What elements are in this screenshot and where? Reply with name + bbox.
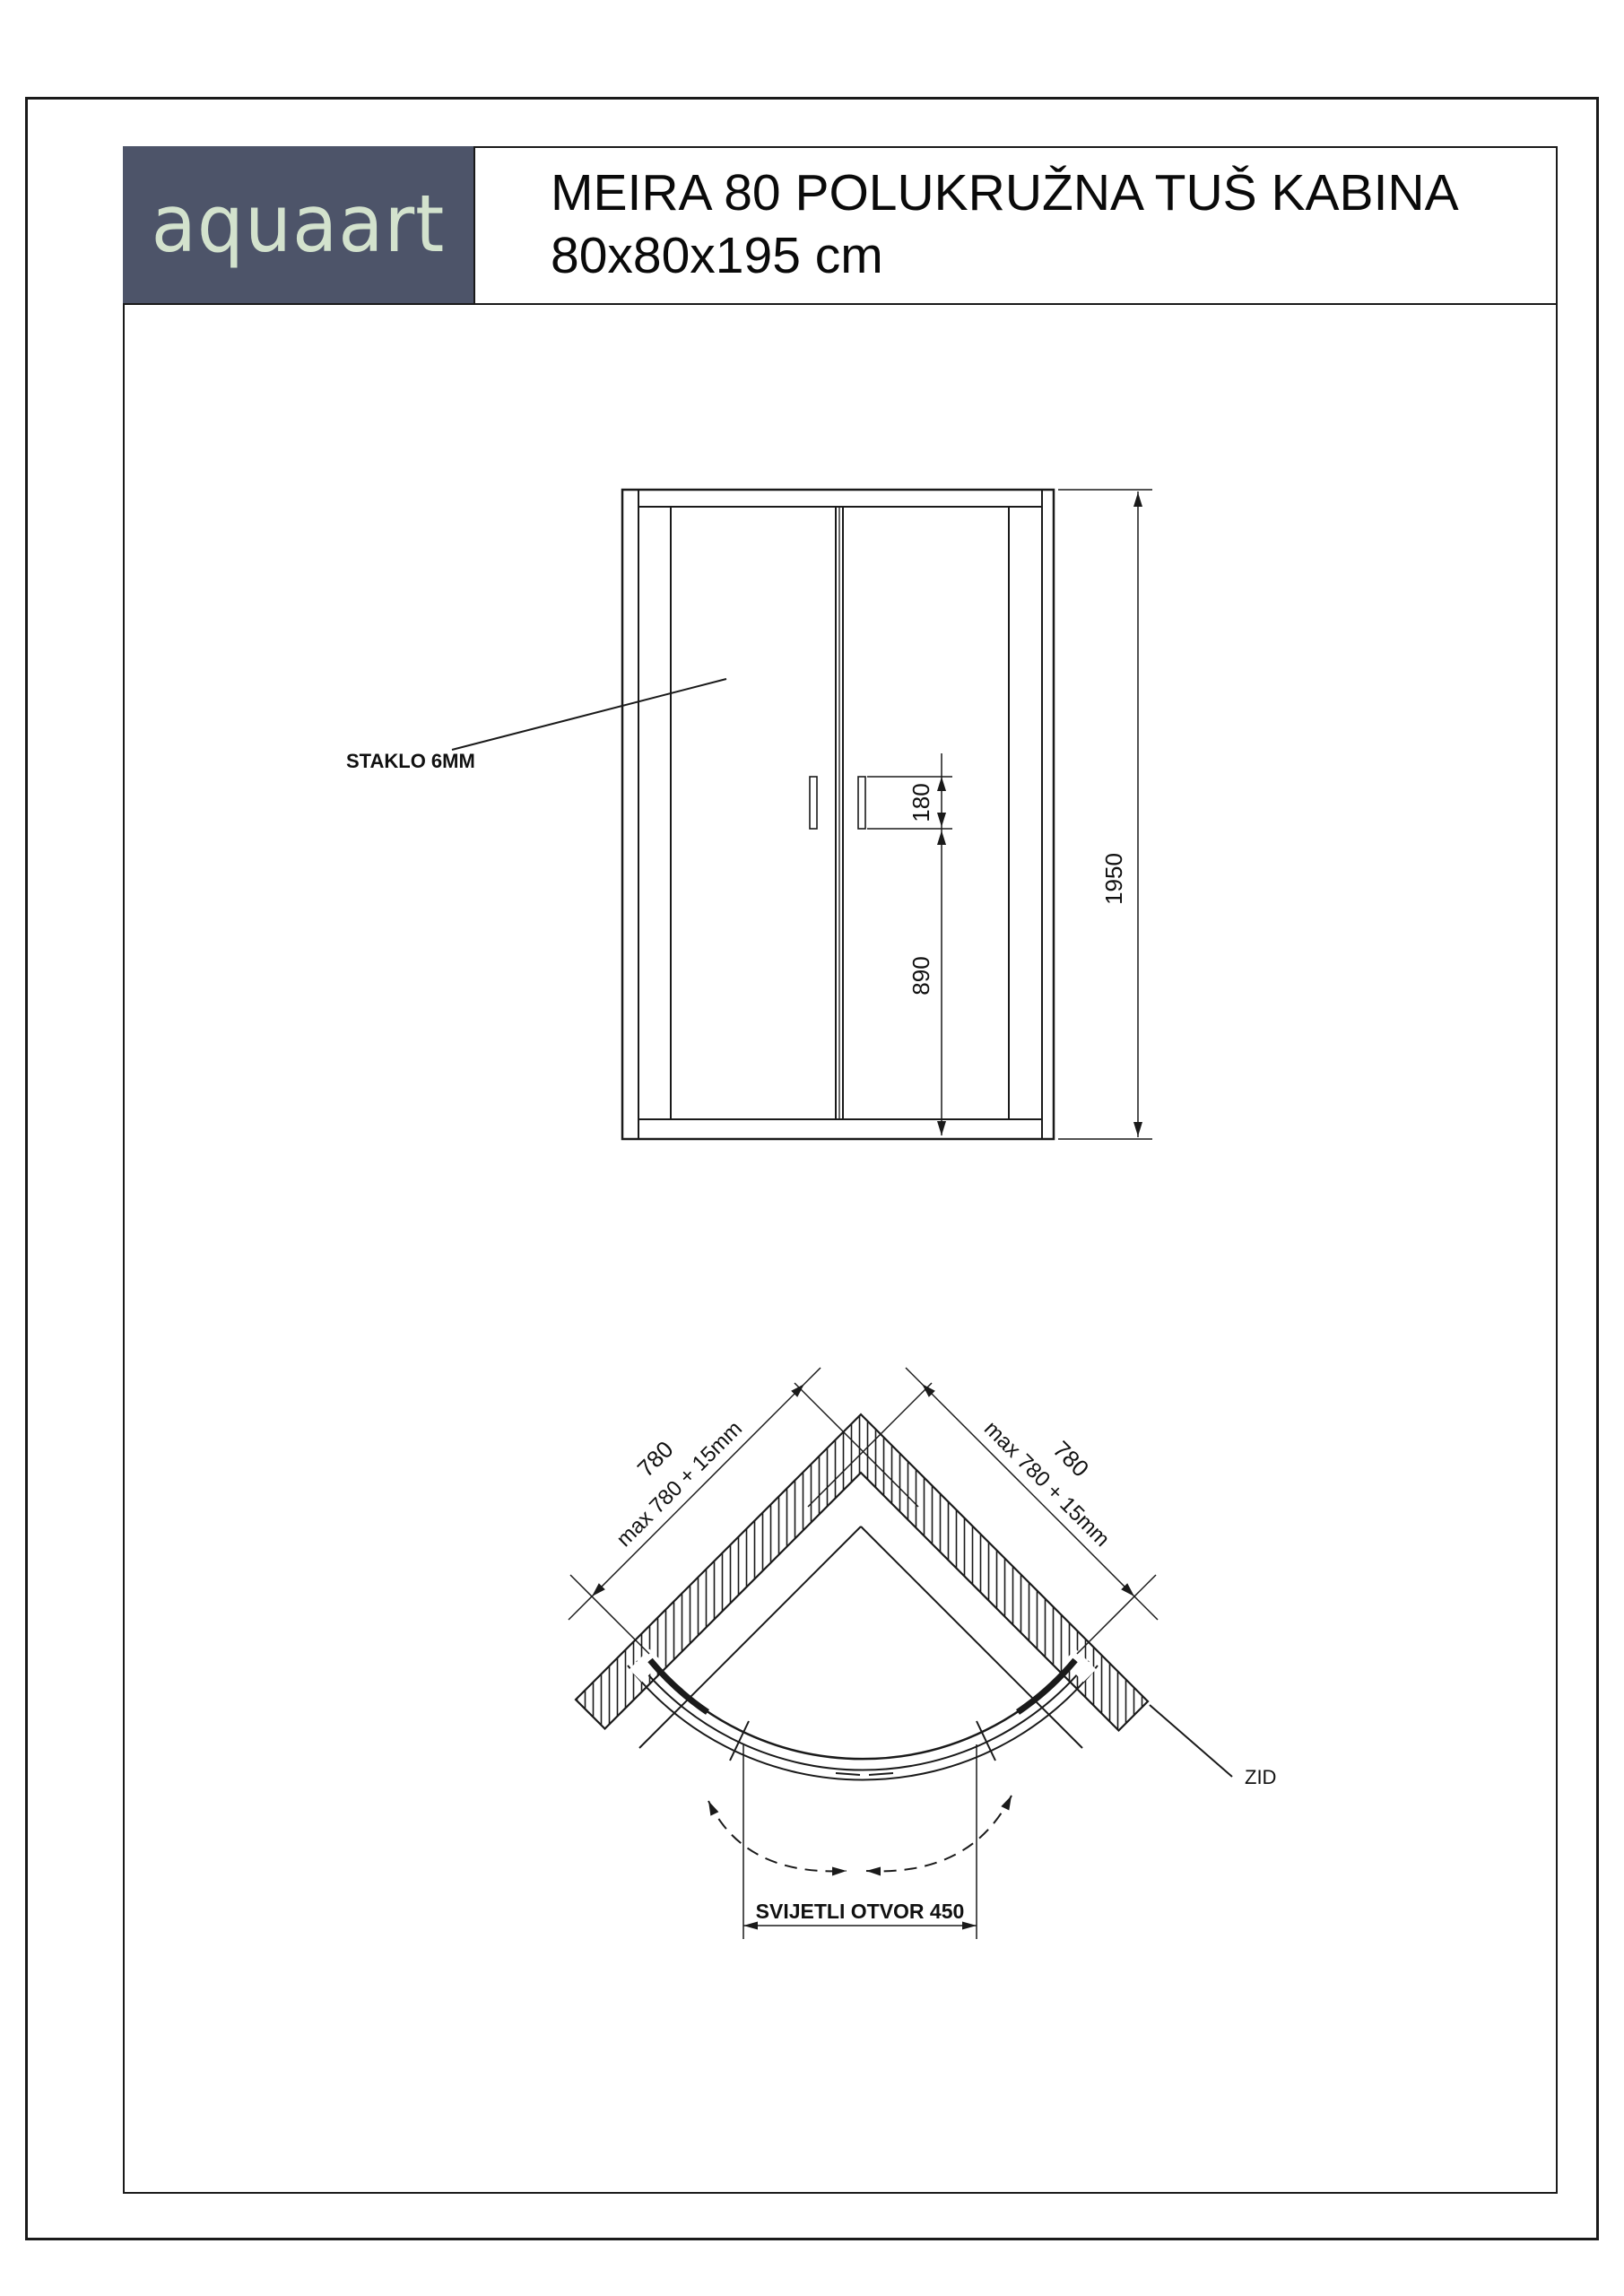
- clear-opening-label: SVIJETLI OTVOR 450: [756, 1900, 965, 1923]
- door-handle-right: [858, 777, 865, 829]
- technical-drawing: 180 890 1950 STAKLO 6MM: [0, 0, 1624, 2296]
- dim-handle-height: 890: [908, 956, 934, 995]
- front-dimensions: [452, 490, 1152, 1139]
- dim-left-wall-max: max 780 + 15mm: [612, 1416, 747, 1552]
- door-handle-left: [810, 777, 817, 829]
- glass-label: STAKLO 6MM: [346, 750, 475, 772]
- dim-right-wall-lines: [808, 1368, 1158, 1654]
- dim-handle-length: 180: [908, 783, 934, 822]
- glass-leader-line: [452, 679, 726, 750]
- dim-total-height: 1950: [1100, 853, 1127, 905]
- dim-right-wall-max: max 780 + 15mm: [979, 1416, 1115, 1552]
- dim-left-wall-lines: [569, 1368, 918, 1654]
- wall-leader-line: [1150, 1705, 1232, 1777]
- door-travel-arrows: [708, 1796, 1012, 1871]
- front-outer-frame: [622, 490, 1054, 1139]
- sliding-door-arc: [650, 1660, 1075, 1759]
- wall-label: ZID: [1245, 1766, 1276, 1788]
- front-elevation: [622, 490, 1054, 1139]
- spec-sheet-page: aquaart MEIRA 80 POLUKRUŽNA TUŠ KABINA 8…: [0, 0, 1624, 2296]
